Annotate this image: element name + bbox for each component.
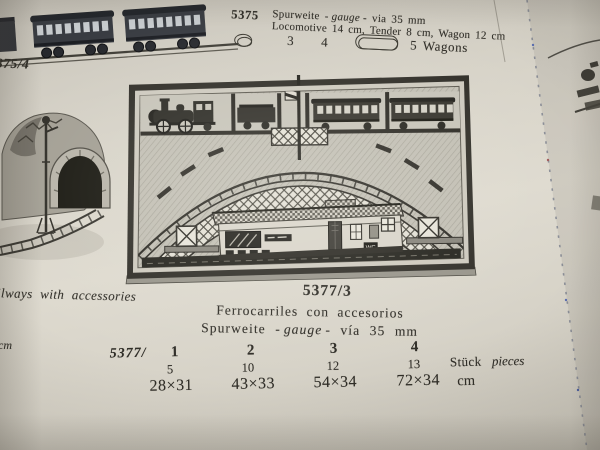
page-edge-overlay xyxy=(0,0,600,450)
catalog-page-photo: 5375 Spurweite -gauge- via 35 mm Locomot… xyxy=(0,0,600,450)
